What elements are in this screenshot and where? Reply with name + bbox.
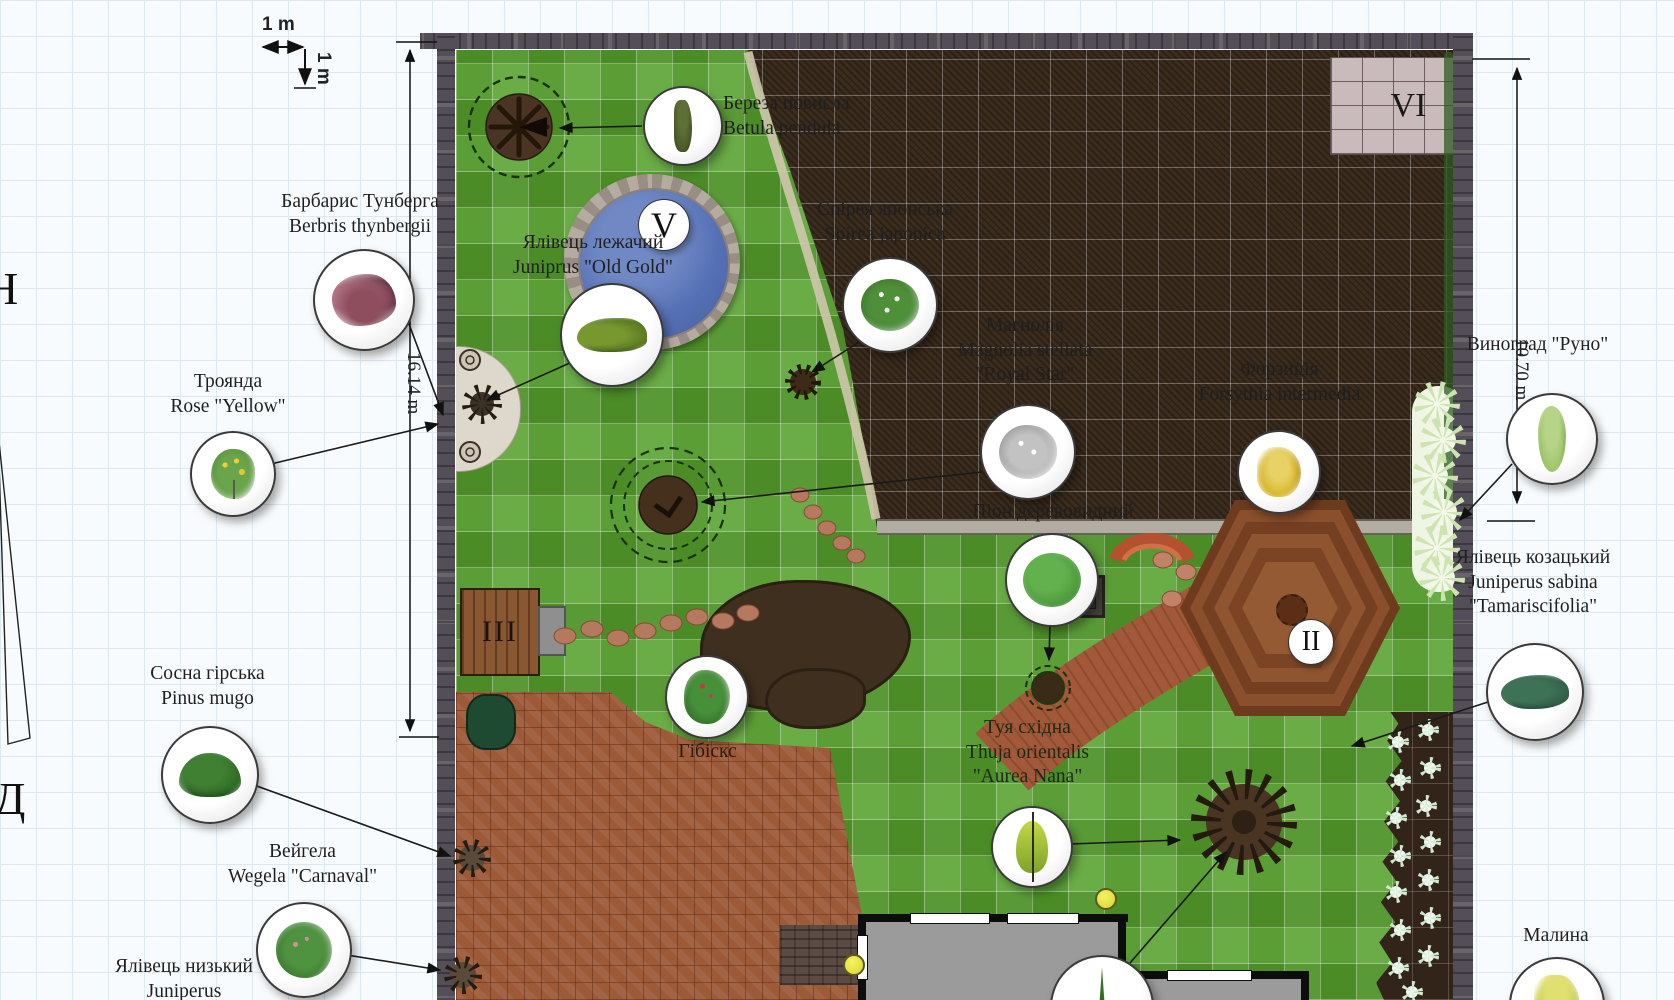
fence-top [420,33,1473,49]
callout-circle-pinus [161,726,259,824]
callout-circle-vitis [1506,393,1598,485]
fence-left [437,33,455,1000]
callout-circle-paeonia [1005,533,1099,627]
callout-circle-thuja [991,806,1073,888]
paved-tile-area: VI [1330,57,1455,155]
label-vitis: Виноград "Руно" [1425,333,1650,358]
house-wall-wing-right [1301,971,1309,1000]
label-old-gold: Ялівець лежачийJuniprus "Old Gold" [458,231,728,280]
house-window [910,913,990,924]
callout-circle-spiraea [842,257,938,353]
label-raspberry: Малина [1505,924,1607,949]
callout-circle-forsythia [1237,430,1321,514]
callout-circle-hibiscus [665,655,749,739]
planting-island-bed-lobe [765,668,866,729]
scale-v-label: 1 m [312,52,334,85]
compass-letter-south: Д [0,772,25,825]
label-berberis: Барбарис ТунбергаBerbris thynbergii [250,190,470,239]
label-juniperus-sabina: Ялівець козацькийJuniperus sabina"Tamari… [1433,546,1633,620]
label-spiraea: Спірея японськаSpirea japonica [790,198,980,247]
garden-lamp [1095,888,1117,910]
label-juniperus-low: Ялівець низькийJuniperus [80,955,288,1000]
callout-circle-juniperus-sabina [1486,643,1584,741]
callout-circle-betula [643,86,723,166]
label-weigela: ВейгелаWegela "Carnaval" [195,840,410,889]
label-hibiscus: Гібіскс [655,740,760,765]
fence-right [1453,33,1473,1000]
wooden-deck: III [460,588,540,676]
label-pinus: Сосна гірськаPinus mugo [115,662,300,711]
compass-letter-north: Н [0,262,18,315]
dimension-left-label: 16.14 m [402,352,424,414]
house-window [1007,913,1079,924]
zone-iii-label: III [482,615,518,649]
house-wall-top [858,914,1128,922]
house-window [1167,970,1252,981]
garden-plan: VI III [0,0,1674,1000]
deck-step [538,606,566,656]
evergreen-bush [466,694,516,750]
compass-needle [0,432,30,744]
scale-h-label: 1 m [262,14,295,36]
zone-vi-label: VI [1391,87,1427,125]
callout-circle-old-gold [560,283,664,387]
garden-lamp [843,954,865,976]
label-paeonia: Піон деревовидний [943,500,1163,525]
label-magnolia: МагноліяMagnolia stellata"Royal Star" [930,314,1120,388]
callout-circle-raspberry [1509,957,1605,1000]
label-rose: ТрояндаRose "Yellow" [133,370,323,419]
gazebo-hexagon [1180,500,1400,716]
callout-circle-magnolia [980,404,1076,500]
scale-indicator [263,47,316,88]
zone-ii-badge: II [1288,619,1334,665]
callout-circle-berberis [313,249,415,351]
fence-vine-strip [1444,52,1453,520]
label-forsythia: ФорзиціяForsythia intermedia [1167,358,1392,407]
dimension-right-label: 10.70 m [1510,338,1532,400]
label-thuja: Туя східнаThuja orientalis"Aurea Nana" [940,716,1115,790]
label-betula: Береза повислаBetula pendula [723,92,893,141]
callout-circle-rose [190,431,276,517]
